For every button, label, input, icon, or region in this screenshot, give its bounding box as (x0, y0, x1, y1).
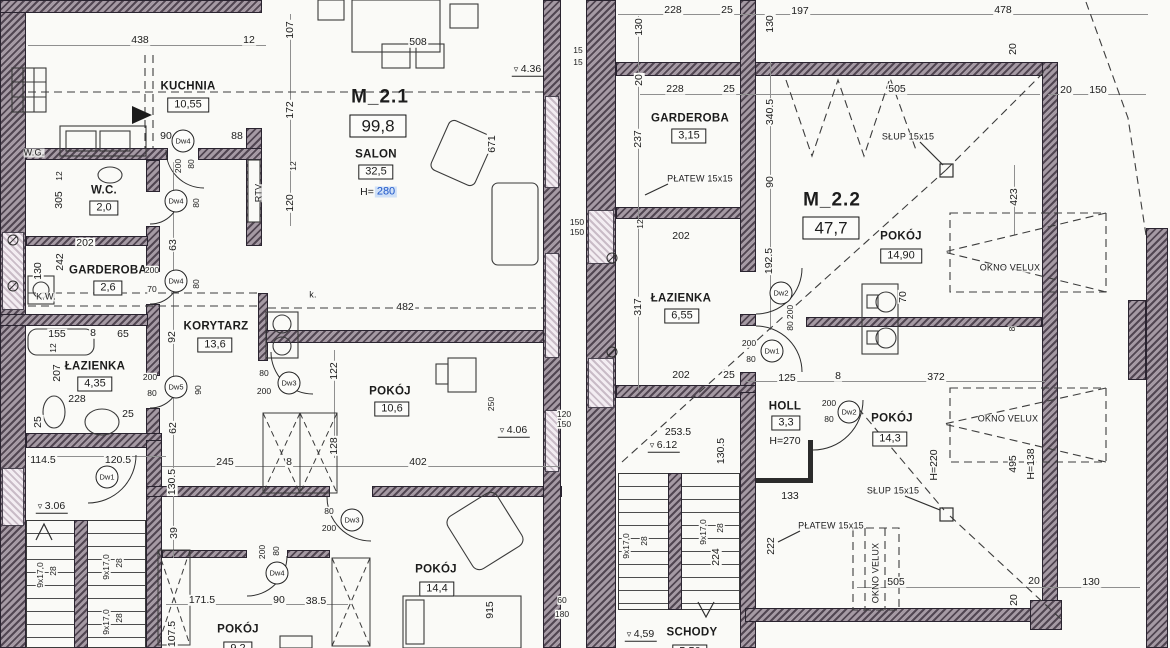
sdim-label-28: 28 (115, 558, 124, 567)
dim-label-207: 207 (52, 363, 63, 383)
dim-label-h-270: H=270 (768, 436, 801, 447)
sdim-label-12: 12 (55, 171, 64, 180)
sdim-label-80: 80 (824, 415, 833, 424)
note-label-k-: k. (309, 291, 316, 300)
sdim-label-8: 8 (1008, 327, 1017, 332)
note-label-płatew-15x15: PŁATEW 15x15 (798, 522, 864, 531)
sdim-label-15: 15 (573, 58, 582, 67)
dim-label-130-5: 130.5 (167, 468, 178, 496)
dim-label-482: 482 (395, 302, 415, 313)
dim-label-228: 228 (663, 5, 683, 16)
level-label-3-06: 3.06 (36, 501, 68, 514)
area-label-2-0: 2,0 (89, 201, 118, 216)
dim-label-107: 107 (285, 20, 296, 40)
area-label-5-50: 5,50 (672, 645, 707, 648)
dim-label-172: 172 (285, 100, 296, 120)
note-label-k-w-: K.W. (36, 293, 56, 302)
note-label-słup-15x15: SŁUP 15x15 (867, 487, 919, 496)
sdim-label-28: 28 (716, 523, 725, 532)
dim-label-478: 478 (993, 5, 1013, 16)
unit-label-m-2-1: M_2.1 (351, 88, 409, 107)
dim-label-130: 130 (1081, 577, 1101, 588)
note-label-okno-velux: OKNO VELUX (978, 415, 1039, 424)
sdim-label-12: 12 (289, 161, 298, 170)
area-label-14-4: 14,4 (419, 582, 454, 597)
sdim-label-9x17-0: 9x17,0 (102, 554, 111, 580)
room-label-garderoba: GARDEROBA (651, 113, 729, 125)
room-label-łazienka: ŁAZIENKA (651, 293, 712, 305)
dim-label-222: 222 (766, 536, 777, 556)
dim-label-88: 88 (230, 131, 244, 142)
dim-label-39: 39 (169, 526, 180, 540)
dim-label-197: 197 (790, 6, 810, 17)
dim-label-h-: H= (359, 187, 375, 198)
door-label-dw4: Dw4 (165, 270, 188, 293)
dim-label-423: 423 (1009, 187, 1020, 207)
dim-label-438: 438 (130, 35, 150, 46)
sdim-label-80: 80 (324, 507, 333, 516)
room-label-kuchnia: KUCHNIA (160, 81, 215, 93)
dim-label-317: 317 (633, 297, 644, 317)
dim-label-130: 130 (33, 261, 44, 281)
dim-label-20: 20 (1009, 593, 1020, 607)
dim-label-125: 125 (777, 373, 797, 384)
sdim-label-9x17-0: 9x17,0 (36, 562, 45, 588)
dim-label-8: 8 (89, 328, 97, 339)
dim-label-12: 12 (242, 35, 256, 46)
dim-label-38-5: 38.5 (305, 596, 327, 607)
room-label-pokój: POKÓJ (871, 413, 913, 425)
dim-label-671: 671 (487, 134, 498, 154)
dim-label-h-138: H=138 (1026, 447, 1037, 480)
sdim-label-200: 200 (742, 339, 756, 348)
note-label-okno-velux: OKNO VELUX (980, 264, 1041, 273)
sdim-label-180: 180 (555, 610, 569, 619)
dim-label-340-5: 340.5 (765, 98, 776, 126)
sdim-label-80: 80 (272, 546, 281, 555)
room-label-holl: HOLL (769, 401, 802, 413)
dim-label-20: 20 (1027, 576, 1041, 587)
hl-label-280: 280 (375, 187, 397, 198)
area-label-32-5: 32,5 (358, 165, 393, 180)
dim-label-90: 90 (765, 175, 776, 189)
dim-label-8: 8 (834, 371, 842, 382)
door-label-dw4: Dw4 (266, 562, 289, 585)
dim-label-150: 150 (1088, 85, 1108, 96)
dim-label-228: 228 (67, 394, 87, 405)
dim-label-505: 505 (887, 84, 907, 95)
sdim-label-28: 28 (49, 566, 58, 575)
dim-label-65: 65 (116, 329, 130, 340)
door-label-dw1: Dw1 (761, 340, 784, 363)
sdim-label-200: 200 (174, 159, 183, 173)
dim-label-171-5: 171.5 (188, 595, 216, 606)
dim-label-25: 25 (121, 409, 135, 420)
dim-label-107-5: 107.5 (167, 620, 178, 648)
area-label-2-6: 2,6 (93, 281, 122, 296)
dim-label-130-5: 130.5 (716, 437, 727, 465)
sdim-label-28: 28 (115, 613, 124, 622)
sdim-label-12: 12 (49, 343, 58, 352)
room-label-pokój: POKÓJ (369, 386, 411, 398)
dim-label-245: 245 (215, 457, 235, 468)
dim-label-305: 305 (54, 190, 65, 210)
sdim-label-12: 12 (636, 219, 645, 228)
note-label-okno-velux: OKNO VELUX (872, 543, 881, 604)
dim-label-128: 128 (329, 436, 340, 456)
room-label-pokój: POKÓJ (880, 231, 922, 243)
sdim-label-80: 80 (746, 355, 755, 364)
sdim-label-80: 80 (187, 159, 196, 168)
sdim-label-80: 80 (192, 279, 201, 288)
sdim-label-150: 150 (570, 228, 584, 237)
dim-label-508: 508 (408, 37, 428, 48)
level-label-4-36: 4.36 (512, 64, 544, 77)
room-label-łazienka: ŁAZIENKA (65, 361, 126, 373)
labels-layer: M_2.199,8SALON32,5H=280KUCHNIA10,55W.C.2… (0, 0, 1170, 648)
note-label-rtv: RTV (255, 184, 264, 202)
sdim-label-120: 120 (557, 410, 571, 419)
door-label-dw3: Dw3 (278, 372, 301, 395)
unit-label-m-2-2: M_2.2 (803, 191, 861, 210)
dim-label-25: 25 (33, 415, 44, 429)
sdim-label-200: 200 (258, 545, 267, 559)
dim-label-202: 202 (75, 238, 95, 249)
room-label-pokój: POKÓJ (415, 564, 457, 576)
dim-label-253-5: 253.5 (664, 427, 692, 438)
door-label-dw1: Dw1 (96, 466, 119, 489)
dim-label-130: 130 (634, 17, 645, 37)
level-label-4-06: 4.06 (498, 425, 530, 438)
dim-label-h-220: H=220 (929, 448, 940, 481)
dim-label-228: 228 (665, 84, 685, 95)
sdim-label-80: 80 (259, 369, 268, 378)
dim-label-114-5: 114.5 (29, 455, 57, 466)
sdim-label-80: 80 (786, 321, 795, 330)
dim-label-8: 8 (285, 457, 293, 468)
dim-label-130: 130 (765, 14, 776, 34)
dim-label-120-5: 120.5 (104, 455, 132, 466)
door-label-dw2: Dw2 (770, 282, 793, 305)
sdim-label-150: 150 (557, 420, 571, 429)
sdim-label-200: 200 (143, 373, 157, 382)
level-label-4-59: 4,59 (625, 629, 657, 642)
dim-label-92: 92 (167, 330, 178, 344)
sdim-label-200: 200 (257, 387, 271, 396)
dim-label-237: 237 (633, 129, 644, 149)
dim-label-25: 25 (720, 5, 734, 16)
room-label-salon: SALON (355, 149, 397, 161)
sdim-label-80: 80 (147, 389, 156, 398)
dim-label-90: 90 (272, 595, 286, 606)
room-label-schody: SCHODY (666, 627, 717, 639)
dim-label-25: 25 (722, 84, 736, 95)
area-label-13-6: 13,6 (197, 338, 232, 353)
sdim-label-200: 200 (786, 305, 795, 319)
dim-label-155: 155 (47, 329, 67, 340)
sdim-label-200: 200 (322, 524, 336, 533)
door-label-dw2: Dw2 (838, 401, 861, 424)
room-label-korytarz: KORYTARZ (183, 321, 248, 333)
room-label-w-c-: W.C. (91, 185, 117, 197)
area-label-6-55: 6,55 (664, 309, 699, 324)
sdim-label-90: 90 (194, 385, 203, 394)
area-label-3-3: 3,3 (771, 416, 800, 431)
area-label-14-90: 14,90 (880, 249, 922, 264)
sdim-label-200: 200 (822, 399, 836, 408)
sdim-label-150: 150 (570, 218, 584, 227)
door-label-dw5: Dw5 (165, 376, 188, 399)
door-label-dw4: Dw4 (172, 130, 195, 153)
area-label-3-15: 3,15 (671, 129, 706, 144)
dim-label-122: 122 (329, 361, 340, 381)
dim-label-495: 495 (1008, 454, 1019, 474)
sdim-label-9x17-0: 9x17,0 (622, 533, 631, 559)
sdim-label-250: 250 (487, 397, 496, 411)
dim-label-120: 120 (285, 193, 296, 213)
uarea-label-47-7: 47,7 (802, 217, 859, 240)
sdim-label-200: 200 (145, 266, 159, 275)
area-label-10-55: 10,55 (167, 98, 209, 113)
note-label-słup-15x15: SŁUP 15x15 (882, 133, 934, 142)
sdim-label-80: 80 (192, 198, 201, 207)
level-label-6-12: 6.12 (648, 440, 680, 453)
area-label-10-6: 10,6 (374, 402, 409, 417)
area-label-14-3: 14,3 (872, 432, 907, 447)
sdim-label-15: 15 (573, 46, 582, 55)
door-label-dw3: Dw3 (341, 509, 364, 532)
note-label-płatew-15x15: PŁATEW 15x15 (667, 175, 733, 184)
dim-label-242: 242 (55, 252, 66, 272)
dim-label-402: 402 (408, 457, 428, 468)
area-label-9-2: 9,2 (223, 642, 252, 648)
dim-label-25: 25 (722, 370, 736, 381)
dim-label-62: 62 (168, 421, 179, 435)
dim-label-224: 224 (711, 547, 722, 567)
dim-label-915: 915 (485, 600, 496, 620)
sdim-label-9x17-0: 9x17,0 (699, 519, 708, 545)
dim-label-63: 63 (168, 238, 179, 252)
uarea-label-99-8: 99,8 (349, 115, 406, 138)
sdim-label-70: 70 (147, 285, 156, 294)
dim-label-505: 505 (886, 577, 906, 588)
dim-label-133: 133 (780, 491, 800, 502)
dim-label-372: 372 (926, 372, 946, 383)
dim-label-202: 202 (671, 231, 691, 242)
floor-plan-canvas: M_2.199,8SALON32,5H=280KUCHNIA10,55W.C.2… (0, 0, 1170, 648)
sdim-label-28: 28 (640, 536, 649, 545)
room-label-pokój: POKÓJ (217, 624, 259, 636)
sdim-label-60: 60 (557, 596, 566, 605)
door-label-dw4: Dw4 (165, 190, 188, 213)
dim-label-20: 20 (1008, 42, 1019, 56)
note-label-w-g-: W.G. (24, 149, 45, 158)
dim-label-192-5: 192.5 (764, 247, 775, 275)
dim-label-20: 20 (634, 73, 645, 87)
dim-label-70: 70 (898, 290, 909, 304)
sdim-label-9x17-0: 9x17,0 (102, 609, 111, 635)
dim-label-20: 20 (1059, 85, 1073, 96)
area-label-4-35: 4,35 (77, 377, 112, 392)
room-label-garderoba: GARDEROBA (69, 265, 147, 277)
dim-label-202: 202 (671, 370, 691, 381)
